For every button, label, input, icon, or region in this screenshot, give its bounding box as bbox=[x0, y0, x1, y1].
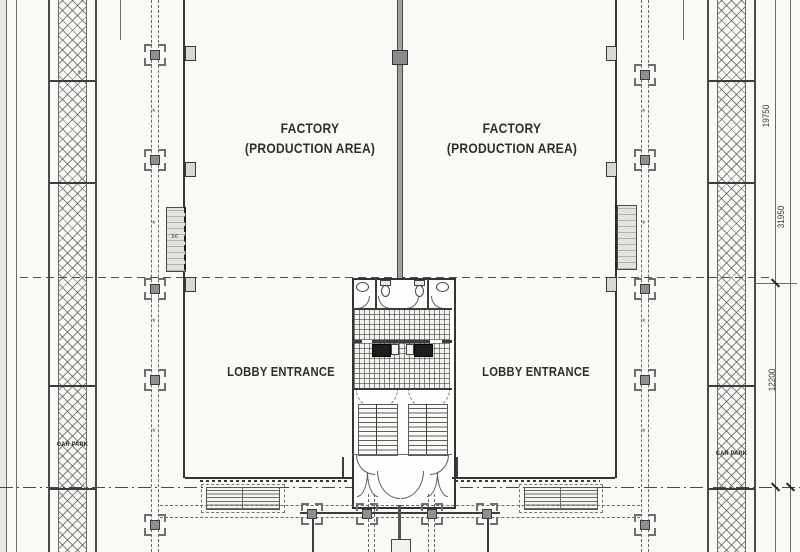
dimension-line-inner bbox=[775, 0, 776, 552]
strip-right-inner-line-b bbox=[745, 0, 746, 552]
wall-pilaster bbox=[185, 46, 196, 61]
entrance-steps-right bbox=[524, 487, 598, 510]
column-marker bbox=[635, 150, 655, 170]
dimension-line-outer bbox=[790, 0, 791, 552]
car-park-label-right: CAR PARK bbox=[712, 450, 751, 457]
column-marker bbox=[635, 279, 655, 299]
entrance-steps-left bbox=[206, 487, 280, 510]
roller-shutter-label: 100 bbox=[171, 234, 178, 240]
column-core bbox=[150, 155, 160, 165]
grid-point-marker: * bbox=[642, 318, 646, 327]
facade-wall-left bbox=[185, 477, 352, 479]
bay-divider bbox=[709, 182, 754, 184]
lobby-label-left: LOBBY ENTRANCE bbox=[221, 364, 341, 379]
car-park-label-left: CAR PARK bbox=[53, 441, 92, 448]
toilet-fixture bbox=[436, 282, 449, 292]
party-wall-column bbox=[392, 50, 408, 65]
column-core bbox=[150, 50, 160, 60]
factory-label-left: FACTORY (PRODUCTION AREA) bbox=[224, 118, 396, 158]
column-core bbox=[640, 520, 650, 530]
wall-pilaster bbox=[606, 46, 617, 61]
bay-divider bbox=[50, 182, 95, 184]
bay-divider bbox=[50, 488, 95, 490]
column-core bbox=[150, 284, 160, 294]
stair-rail-right bbox=[426, 404, 427, 454]
grid-point-marker: * bbox=[642, 428, 646, 437]
center-footing-box bbox=[391, 539, 411, 552]
sink-counter-right bbox=[414, 344, 433, 357]
grid-point-marker: * bbox=[642, 220, 646, 229]
lobby-front-stub-right bbox=[456, 457, 458, 477]
wall-pilaster bbox=[185, 162, 196, 177]
factory-label-left-line1: FACTORY bbox=[224, 118, 396, 138]
roller-shutter-left: 100 bbox=[166, 207, 186, 272]
dimension-label-12200: 12200 bbox=[767, 360, 777, 400]
bay-divider bbox=[50, 80, 95, 82]
stall-divider bbox=[427, 278, 429, 308]
factory-label-right: FACTORY (PRODUCTION AREA) bbox=[426, 118, 598, 158]
duct-box-right bbox=[406, 344, 414, 355]
column-marker bbox=[145, 370, 165, 390]
factory-label-left-line2: (PRODUCTION AREA) bbox=[224, 138, 396, 158]
stair-rail-left bbox=[376, 404, 377, 454]
bay-number-lower: 7 bbox=[78, 170, 81, 176]
column-marker bbox=[302, 504, 322, 524]
roller-shutter-right bbox=[617, 205, 637, 270]
factory-label-right-line1: FACTORY bbox=[426, 118, 598, 138]
column-core bbox=[640, 70, 650, 80]
bay-divider bbox=[709, 488, 754, 490]
tile-floor-upper bbox=[354, 310, 450, 340]
wall-pilaster bbox=[185, 277, 196, 292]
bay-divider bbox=[709, 80, 754, 82]
margin-line-inner bbox=[16, 0, 17, 552]
column-core bbox=[150, 520, 160, 530]
column-marker bbox=[477, 504, 497, 524]
column-core bbox=[482, 509, 492, 519]
wall-pilaster bbox=[606, 277, 617, 292]
wall-pilaster bbox=[606, 162, 617, 177]
stair-flight-right bbox=[408, 404, 448, 456]
car-park-strip-right: CAR PARK bbox=[707, 0, 756, 552]
roller-shutter-right-dashes bbox=[615, 205, 617, 268]
bay-divider bbox=[50, 385, 95, 387]
strip-left-hatch bbox=[59, 0, 86, 552]
car-park-strip-left: 6 7 CAR PARK bbox=[48, 0, 97, 552]
lobby-label-right: LOBBY ENTRANCE bbox=[476, 364, 596, 379]
column-marker bbox=[145, 515, 165, 535]
toilet-fixture bbox=[356, 282, 369, 292]
grid-point-marker: * bbox=[152, 220, 156, 229]
grid-point-marker: * bbox=[152, 108, 156, 117]
bay-divider bbox=[709, 385, 754, 387]
column-marker bbox=[422, 504, 442, 524]
dimension-label-31950: 31950 bbox=[776, 197, 786, 237]
column-core bbox=[640, 375, 650, 385]
duct-box-left bbox=[391, 344, 399, 355]
strip-left-inner-line-b bbox=[86, 0, 87, 552]
column-core bbox=[640, 155, 650, 165]
column-core bbox=[307, 509, 317, 519]
facade-glazing-right bbox=[455, 480, 600, 482]
facade-wall-right bbox=[452, 477, 615, 479]
column-core bbox=[362, 509, 372, 519]
grid-point-marker: * bbox=[152, 318, 156, 327]
column-core bbox=[150, 375, 160, 385]
column-marker bbox=[635, 515, 655, 535]
roller-shutter-left-dashes bbox=[184, 207, 186, 270]
column-marker bbox=[635, 370, 655, 390]
lobby-front-stub-left bbox=[342, 457, 344, 477]
column-marker bbox=[145, 279, 165, 299]
canopy-edge-right bbox=[683, 0, 684, 40]
column-marker bbox=[635, 65, 655, 85]
column-core bbox=[640, 284, 650, 294]
factory-label-right-line2: (PRODUCTION AREA) bbox=[426, 138, 598, 158]
column-grid-line-left-a bbox=[151, 0, 152, 552]
stair-flight-left bbox=[358, 404, 398, 456]
column-grid-line-left-b bbox=[158, 0, 159, 552]
floor-plan-canvas: 6 7 CAR PARK CAR PARK 100 bbox=[0, 0, 800, 552]
stall-divider bbox=[375, 278, 377, 308]
bay-number-upper: 6 bbox=[78, 70, 81, 76]
tile-floor-lower bbox=[354, 343, 450, 389]
grid-point-marker: * bbox=[642, 108, 646, 117]
canopy-edge-left bbox=[120, 0, 121, 40]
column-marker bbox=[145, 45, 165, 65]
grid-point-marker: * bbox=[152, 428, 156, 437]
column-core bbox=[427, 509, 437, 519]
column-marker bbox=[145, 150, 165, 170]
facade-glazing-left bbox=[200, 480, 350, 482]
strip-right-hatch bbox=[718, 0, 745, 552]
column-marker bbox=[357, 504, 377, 524]
sink-counter-left bbox=[372, 344, 391, 357]
dimension-label-19750: 19750 bbox=[761, 96, 771, 136]
margin-line-outer bbox=[6, 0, 7, 552]
